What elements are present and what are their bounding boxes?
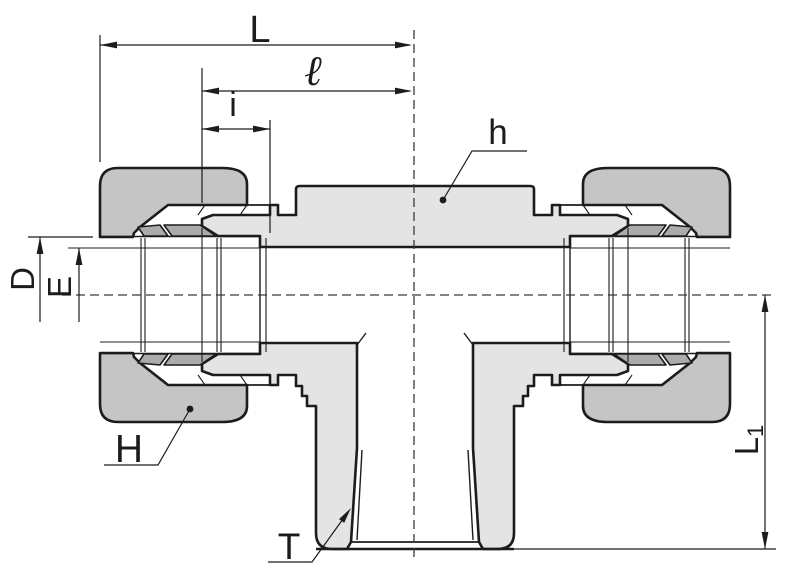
dim-label-h: h bbox=[488, 113, 507, 152]
left-back-ferrule-top bbox=[138, 225, 168, 236]
dim-label-L1-sub: 1 bbox=[743, 425, 768, 437]
right-back-ferrule-top bbox=[662, 225, 692, 236]
dim-label-T: T bbox=[278, 526, 301, 567]
dimension-L bbox=[100, 35, 412, 162]
dim-label-L: L bbox=[249, 9, 270, 51]
body-lower-left-section bbox=[202, 343, 357, 549]
dim-label-L1-base: L bbox=[728, 437, 765, 455]
dim-label-i: i bbox=[229, 86, 237, 124]
drawing-canvas: L ℓ i h H T D E L1 bbox=[0, 0, 800, 576]
body-lower-right-section bbox=[473, 343, 628, 549]
dim-label-D: D bbox=[4, 267, 41, 291]
right-back-ferrule-bottom bbox=[662, 354, 692, 365]
body-upper-section bbox=[202, 186, 628, 247]
dim-label-E: E bbox=[41, 276, 78, 298]
left-back-ferrule-bottom bbox=[138, 354, 168, 365]
dim-label-ell: ℓ bbox=[304, 46, 322, 95]
fitting-technical-drawing: L ℓ i h H T D E L1 bbox=[0, 0, 800, 576]
dim-label-L1: L1 bbox=[728, 425, 768, 456]
dim-label-H: H bbox=[115, 428, 143, 471]
